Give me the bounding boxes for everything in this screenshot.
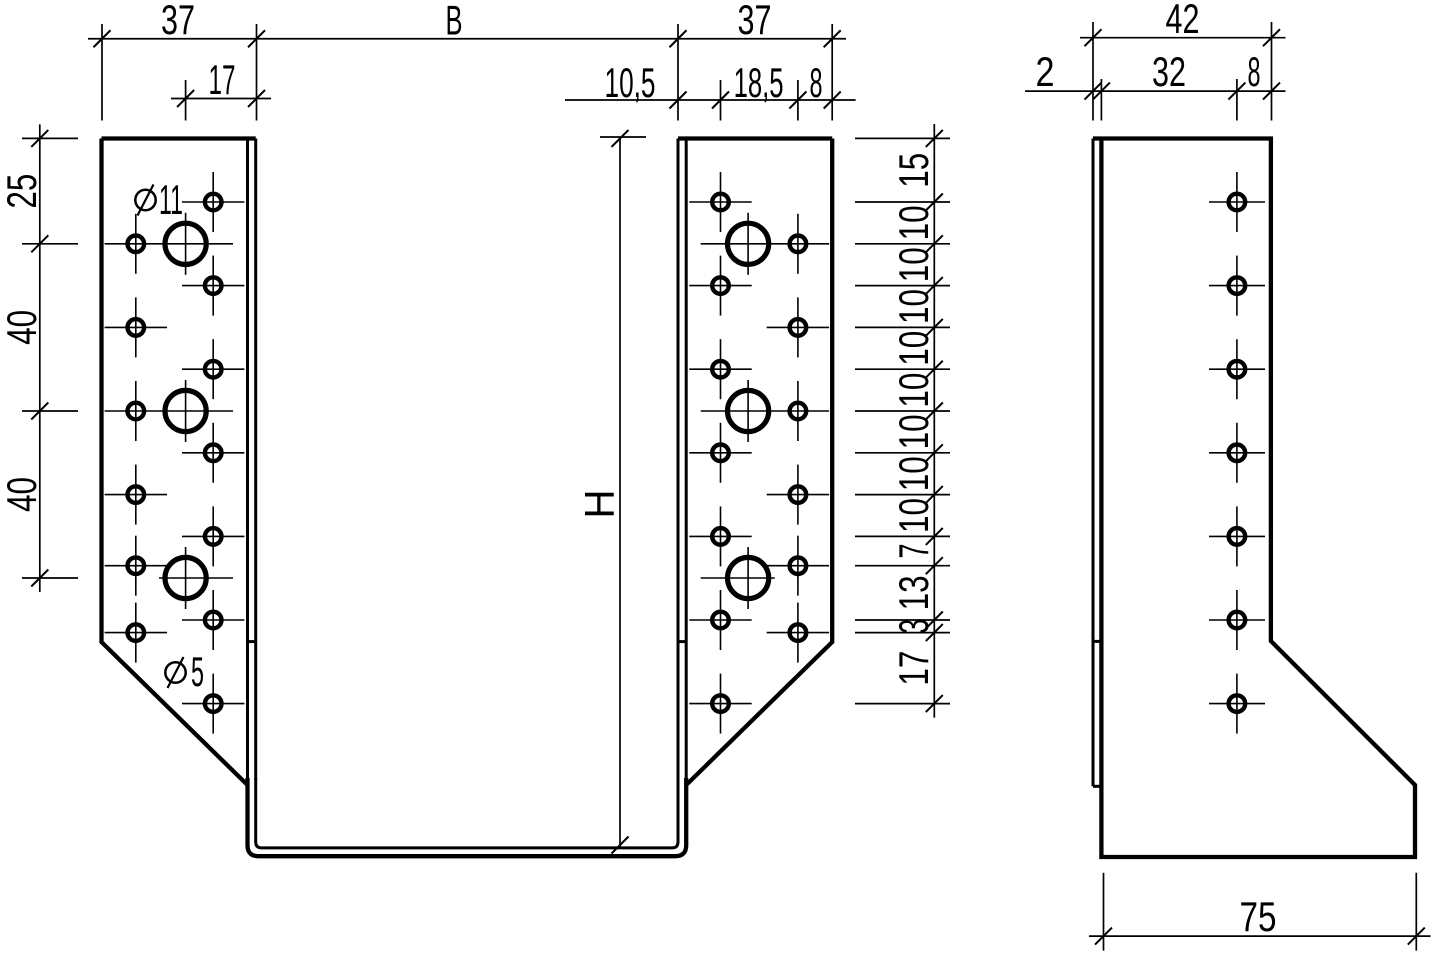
svg-text:10: 10: [890, 373, 937, 408]
svg-text:10: 10: [890, 205, 937, 240]
svg-text:10: 10: [890, 247, 937, 282]
svg-text:11: 11: [159, 176, 183, 223]
svg-text:10: 10: [890, 414, 937, 449]
svg-text:32: 32: [1152, 48, 1186, 95]
svg-text:10: 10: [890, 331, 937, 366]
svg-text:8: 8: [1248, 48, 1261, 95]
svg-text:17: 17: [209, 56, 236, 103]
svg-text:10,5: 10,5: [605, 59, 656, 106]
svg-text:5: 5: [191, 648, 204, 695]
svg-text:40: 40: [0, 477, 45, 512]
svg-text:13: 13: [890, 575, 937, 610]
svg-text:3: 3: [890, 619, 937, 634]
svg-text:7: 7: [890, 544, 937, 559]
svg-text:10: 10: [890, 289, 937, 324]
svg-text:37: 37: [738, 0, 772, 43]
svg-text:40: 40: [0, 310, 45, 345]
svg-text:75: 75: [1240, 893, 1277, 940]
svg-text:37: 37: [161, 0, 195, 43]
svg-text:15: 15: [890, 153, 937, 188]
svg-text:H: H: [576, 490, 623, 519]
svg-text:B: B: [446, 0, 463, 44]
svg-text:42: 42: [1166, 0, 1200, 42]
svg-text:10: 10: [890, 456, 937, 491]
svg-text:8: 8: [810, 59, 823, 106]
svg-text:10: 10: [890, 498, 937, 533]
svg-text:25: 25: [0, 174, 45, 209]
svg-text:17: 17: [890, 651, 937, 686]
svg-text:18,5: 18,5: [734, 59, 784, 106]
svg-text:2: 2: [1036, 48, 1055, 95]
